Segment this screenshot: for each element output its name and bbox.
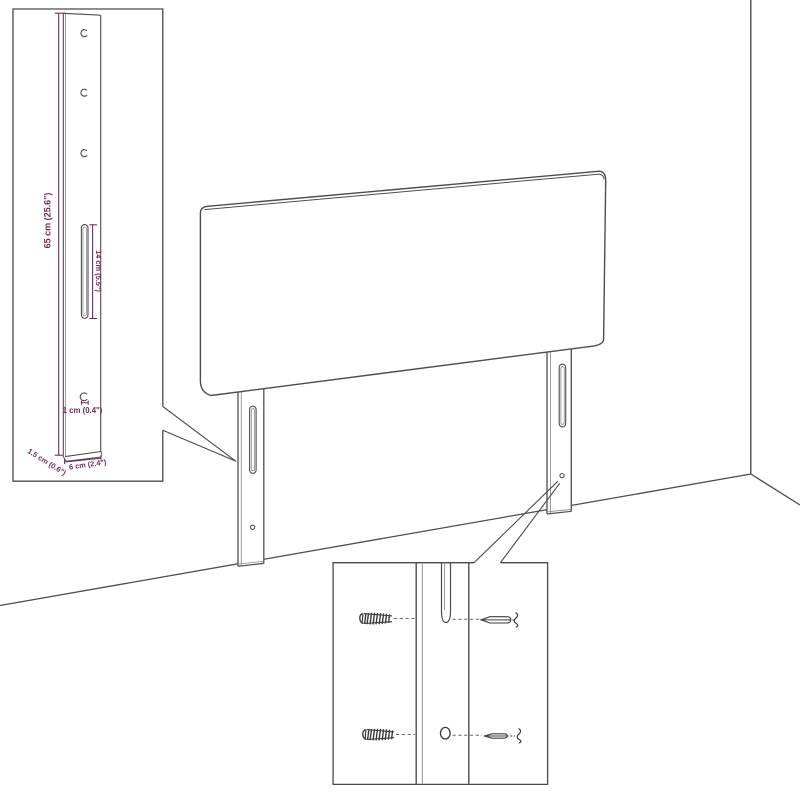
svg-text:65 cm (25.6"): 65 cm (25.6") xyxy=(42,193,52,249)
svg-text:1 cm (0.4"): 1 cm (0.4") xyxy=(63,406,103,415)
svg-text:14 cm (5.5"): 14 cm (5.5") xyxy=(94,250,103,292)
